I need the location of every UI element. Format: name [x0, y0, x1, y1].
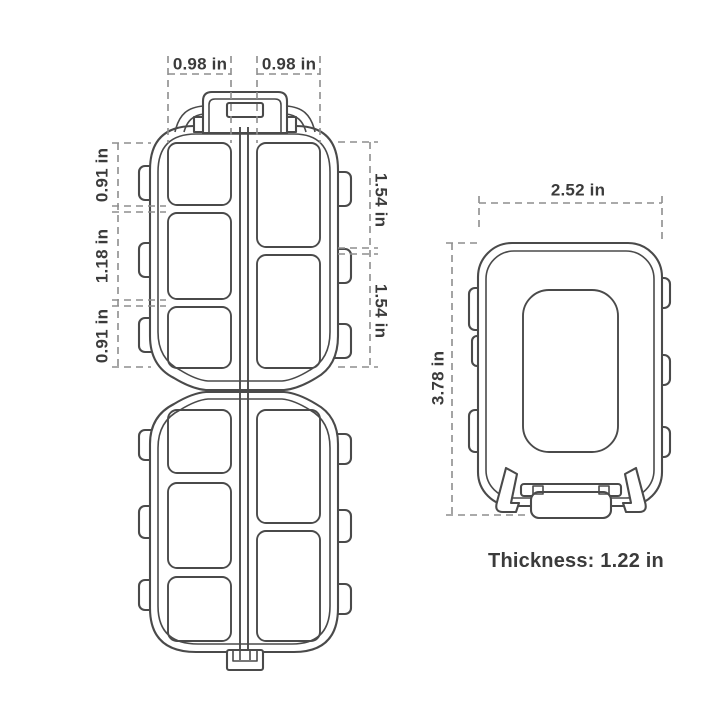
- closed-case-view: [469, 243, 670, 518]
- dim-label-open-left-middle-height: 1.18 in: [94, 229, 111, 283]
- dim-label-closed-height: 3.78 in: [430, 351, 447, 405]
- open-case-view: [139, 92, 351, 670]
- thickness-label: Thickness: 1.22 in: [488, 551, 664, 571]
- dim-label-open-top-right-width: 0.98 in: [262, 56, 316, 73]
- dim-label-open-left-bottom-height: 0.91 in: [94, 309, 111, 363]
- open-case-lower-shell: [150, 392, 338, 652]
- dim-label-closed-width: 2.52 in: [551, 182, 605, 199]
- dim-label-open-right-top-height: 1.54 in: [373, 173, 390, 227]
- dim-label-open-right-bottom-height: 1.54 in: [373, 284, 390, 338]
- open-case-top-latch: [175, 92, 315, 133]
- product-dimension-diagram: 0.98 in 0.98 in 0.91 in 1.18 in 0.91 in …: [0, 0, 720, 720]
- closed-case-body: [478, 243, 662, 506]
- dim-label-open-top-left-width: 0.98 in: [173, 56, 227, 73]
- open-case-bottom-tab: [227, 650, 263, 670]
- dim-label-open-left-top-height: 0.91 in: [94, 148, 111, 202]
- open-case-upper-shell: [150, 126, 338, 390]
